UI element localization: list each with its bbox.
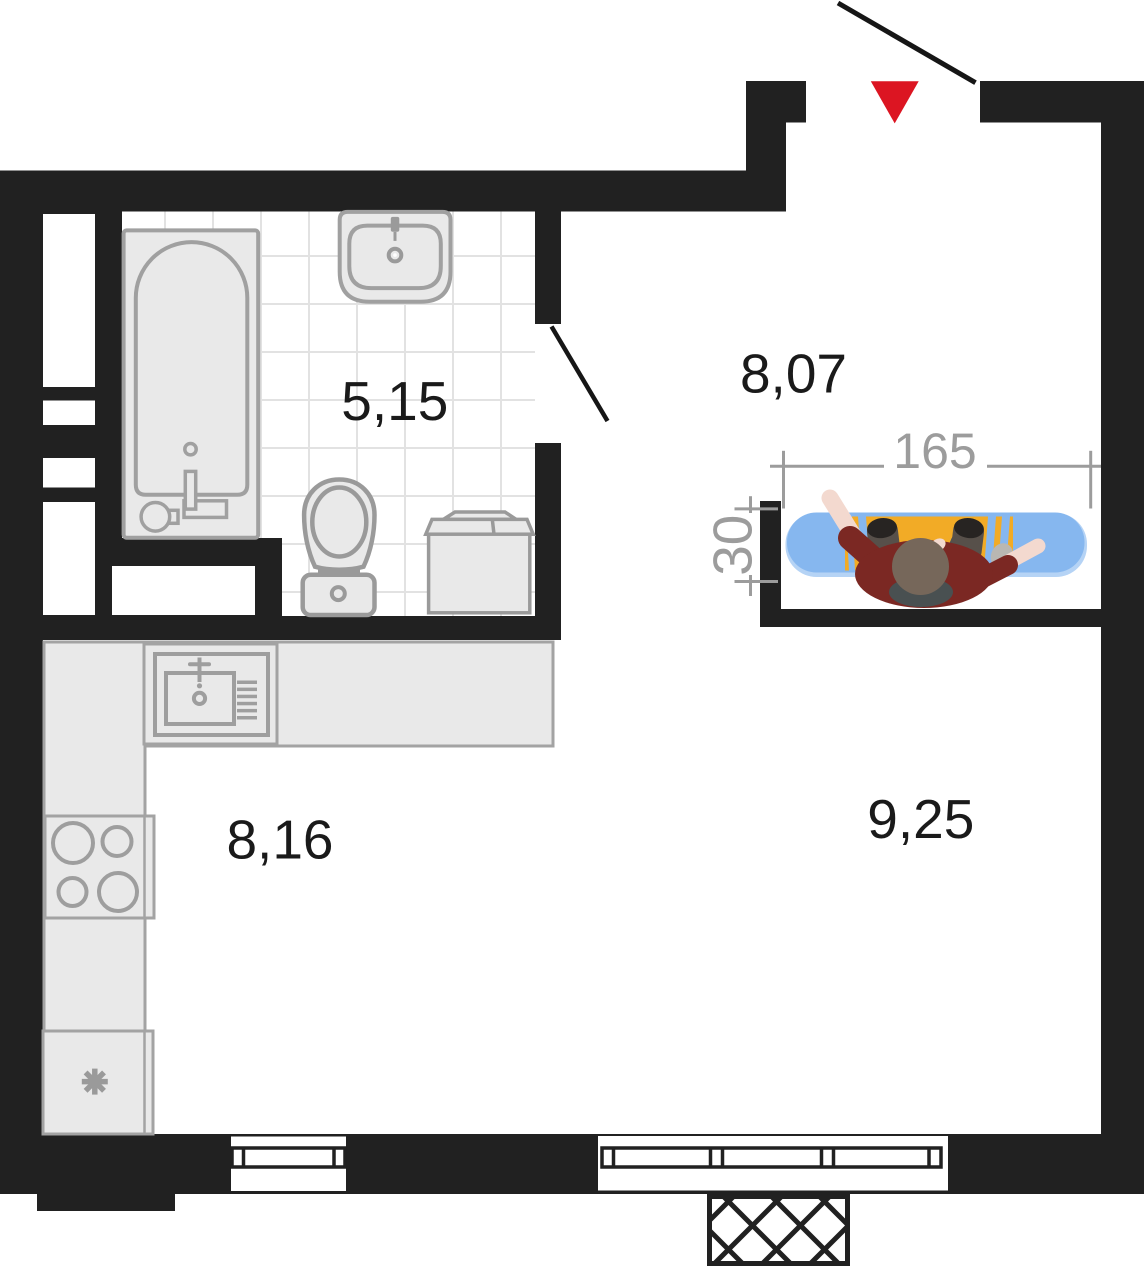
svg-text:8,16: 8,16 <box>226 809 333 871</box>
svg-text:30: 30 <box>702 515 764 576</box>
svg-text:9,25: 9,25 <box>867 788 974 850</box>
svg-text:8,07: 8,07 <box>740 343 847 405</box>
svg-text:165: 165 <box>893 423 976 479</box>
svg-text:5,15: 5,15 <box>341 370 448 432</box>
